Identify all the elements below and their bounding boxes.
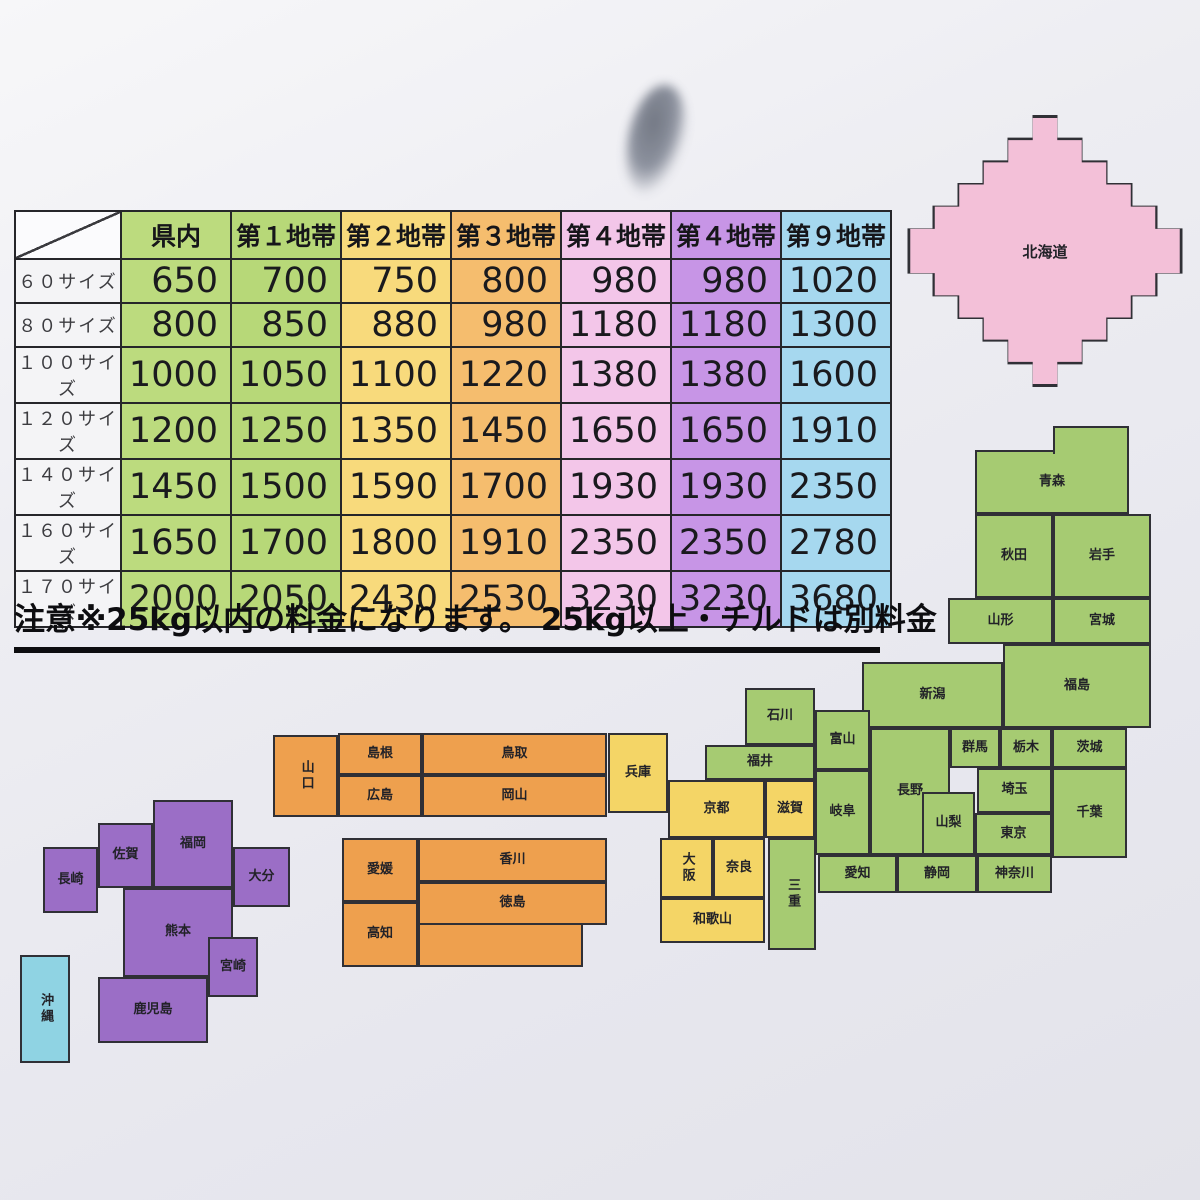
- column-header-6: 第９地帯: [781, 211, 891, 259]
- price-cell: 1930: [671, 459, 781, 515]
- prefecture-tottori: 鳥取: [422, 733, 607, 775]
- prefecture-hyogo: 兵庫: [608, 733, 668, 813]
- prefecture-yamagata: 山形: [948, 598, 1053, 644]
- column-header-5: 第４地帯: [671, 211, 781, 259]
- price-cell: 850: [231, 303, 341, 347]
- prefecture-kyoto: 京都: [668, 780, 765, 838]
- table-row: １００サイズ1000105011001220138013801600: [15, 347, 891, 403]
- prefecture-akita: 秋田: [975, 514, 1053, 598]
- row-label-1: ８０サイズ: [15, 303, 121, 347]
- prefecture-tokyo: 東京: [975, 813, 1052, 855]
- price-cell: 1380: [671, 347, 781, 403]
- prefecture-tochigi: 栃木: [1000, 728, 1052, 768]
- prefecture-shizuoka: 静岡: [897, 855, 977, 893]
- price-cell: 750: [341, 259, 451, 303]
- hokkaido-fill: 北海道: [898, 118, 1192, 384]
- price-cell: 650: [121, 259, 231, 303]
- price-cell: 1000: [121, 347, 231, 403]
- prefecture-miyagi: 宮城: [1053, 598, 1151, 644]
- prefecture-osaka: 大阪: [660, 838, 713, 898]
- price-cell: 1930: [561, 459, 671, 515]
- price-cell: 980: [561, 259, 671, 303]
- prefecture-aichi: 愛知: [818, 855, 897, 893]
- price-cell: 800: [121, 303, 231, 347]
- aomori-peninsula-tab: [1053, 426, 1129, 454]
- price-cell: 2780: [781, 515, 891, 571]
- price-cell: 1020: [781, 259, 891, 303]
- price-cell: 1700: [231, 515, 341, 571]
- price-cell: 1590: [341, 459, 451, 515]
- prefecture-okinawa: 沖縄: [20, 955, 70, 1063]
- price-cell: 1250: [231, 403, 341, 459]
- prefecture-gifu: 岐阜: [815, 770, 870, 855]
- row-label-2: １００サイズ: [15, 347, 121, 403]
- prefecture-wakayama: 和歌山: [660, 898, 765, 943]
- price-cell: 1180: [561, 303, 671, 347]
- prefecture-chiba: 千葉: [1052, 768, 1127, 858]
- table-corner-cell: [15, 211, 121, 259]
- column-header-2: 第２地帯: [341, 211, 451, 259]
- prefecture-hokkaido: 北海道: [895, 115, 1195, 387]
- price-cell: 1650: [671, 403, 781, 459]
- price-cell: 980: [671, 259, 781, 303]
- column-header-4: 第４地帯: [561, 211, 671, 259]
- price-cell: 1800: [341, 515, 451, 571]
- table-row: ８０サイズ800850880980118011801300: [15, 303, 891, 347]
- price-cell: 1450: [451, 403, 561, 459]
- row-label-5: １６０サイズ: [15, 515, 121, 571]
- price-cell: 1350: [341, 403, 451, 459]
- price-cell: 1700: [451, 459, 561, 515]
- note-text: 注意※25kg以内の料金になります。 25kg以上・チルドは別料金: [14, 594, 880, 653]
- prefecture-saga: 佐賀: [98, 823, 153, 888]
- prefecture-label-hokkaido: 北海道: [1022, 241, 1067, 262]
- price-cell: 1200: [121, 403, 231, 459]
- prefecture-hiroshima: 広島: [338, 775, 422, 817]
- prefecture-yamanashi: 山梨: [922, 792, 975, 855]
- price-cell: 2350: [671, 515, 781, 571]
- prefecture-fukushima: 福島: [1003, 644, 1151, 728]
- shipping-rate-table: 県内第１地帯第２地帯第３地帯第４地帯第４地帯第９地帯 ６０サイズ65070075…: [14, 210, 892, 628]
- price-cell: 1300: [781, 303, 891, 347]
- price-cell: 1650: [561, 403, 671, 459]
- prefecture-gunma: 群馬: [950, 728, 1000, 768]
- price-cell: 1910: [451, 515, 561, 571]
- shikoku-extension: [418, 925, 583, 967]
- price-cell: 980: [451, 303, 561, 347]
- price-cell: 1910: [781, 403, 891, 459]
- prefecture-oita: 大分: [233, 847, 290, 907]
- table-header-row: 県内第１地帯第２地帯第３地帯第４地帯第４地帯第９地帯: [15, 211, 891, 259]
- price-cell: 700: [231, 259, 341, 303]
- prefecture-okayama: 岡山: [422, 775, 607, 817]
- prefecture-ibaraki: 茨城: [1052, 728, 1127, 768]
- prefecture-shimane: 島根: [338, 733, 422, 775]
- table-row: １４０サイズ1450150015901700193019302350: [15, 459, 891, 515]
- prefecture-kagawa: 香川: [418, 838, 607, 882]
- table-row: １２０サイズ1200125013501450165016501910: [15, 403, 891, 459]
- prefecture-iwate: 岩手: [1053, 514, 1151, 598]
- table-row: １６０サイズ1650170018001910235023502780: [15, 515, 891, 571]
- prefecture-mie: 三重: [768, 838, 816, 950]
- price-cell: 880: [341, 303, 451, 347]
- prefecture-nagasaki: 長崎: [43, 847, 98, 913]
- price-cell: 1180: [671, 303, 781, 347]
- prefecture-kochi: 高知: [342, 902, 418, 967]
- price-cell: 1500: [231, 459, 341, 515]
- prefecture-shiga: 滋賀: [765, 780, 815, 838]
- prefecture-fukui: 福井: [705, 745, 815, 780]
- column-header-3: 第３地帯: [451, 211, 561, 259]
- price-cell: 1380: [561, 347, 671, 403]
- price-cell: 1220: [451, 347, 561, 403]
- column-header-1: 第１地帯: [231, 211, 341, 259]
- prefecture-toyama: 富山: [815, 710, 870, 770]
- price-cell: 2350: [781, 459, 891, 515]
- row-label-4: １４０サイズ: [15, 459, 121, 515]
- table-row: ６０サイズ6507007508009809801020: [15, 259, 891, 303]
- prefecture-miyazaki: 宮崎: [208, 937, 258, 997]
- prefecture-kanagawa: 神奈川: [977, 855, 1052, 893]
- prefecture-yamaguchi: 山口: [273, 735, 338, 817]
- prefecture-saitama: 埼玉: [977, 768, 1052, 813]
- prefecture-tokushima: 徳島: [418, 882, 607, 925]
- prefecture-kagoshima: 鹿児島: [98, 977, 208, 1043]
- price-cell: 1650: [121, 515, 231, 571]
- price-cell: 2350: [561, 515, 671, 571]
- prefecture-nara: 奈良: [713, 838, 765, 898]
- prefecture-aomori: 青森: [975, 450, 1129, 514]
- price-cell: 1050: [231, 347, 341, 403]
- prefecture-fukuoka: 福岡: [153, 800, 233, 888]
- price-cell: 1450: [121, 459, 231, 515]
- price-cell: 1600: [781, 347, 891, 403]
- prefecture-niigata: 新潟: [862, 662, 1003, 728]
- row-label-3: １２０サイズ: [15, 403, 121, 459]
- row-label-0: ６０サイズ: [15, 259, 121, 303]
- column-header-0: 県内: [121, 211, 231, 259]
- prefecture-ishikawa: 石川: [745, 688, 815, 745]
- prefecture-ehime: 愛媛: [342, 838, 418, 902]
- price-cell: 1100: [341, 347, 451, 403]
- price-cell: 800: [451, 259, 561, 303]
